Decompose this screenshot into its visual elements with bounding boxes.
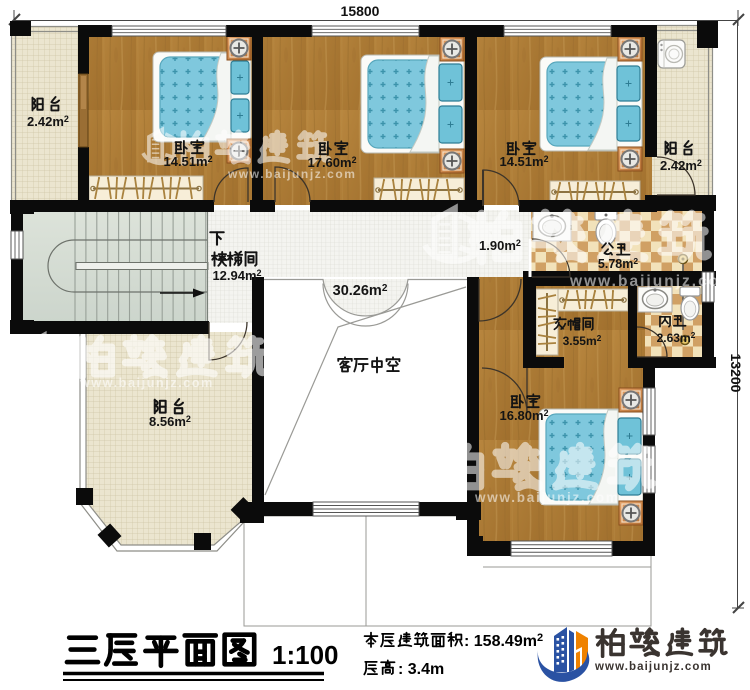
svg-text:13200: 13200 — [728, 354, 744, 393]
svg-text:30.26m2: 30.26m2 — [333, 283, 388, 299]
svg-text:: 158.49m2: : 158.49m2 — [464, 632, 543, 650]
svg-text:15800: 15800 — [341, 3, 380, 19]
svg-text:1:100: 1:100 — [272, 640, 339, 670]
svg-text:2.42m2: 2.42m2 — [27, 114, 69, 129]
svg-text:8.56m2: 8.56m2 — [149, 414, 191, 429]
svg-text:www.baijunjz.com: www.baijunjz.com — [79, 376, 214, 390]
svg-text:1.90m2: 1.90m2 — [479, 238, 521, 253]
svg-text:2.42m2: 2.42m2 — [660, 158, 702, 173]
svg-text:www.baijunjz.com: www.baijunjz.com — [569, 273, 736, 290]
svg-text:14.51m2: 14.51m2 — [163, 154, 212, 169]
svg-text:www.baijunjz.com: www.baijunjz.com — [474, 490, 620, 505]
svg-text:5.78m2: 5.78m2 — [598, 256, 638, 271]
svg-text:2.63m2: 2.63m2 — [657, 330, 696, 345]
svg-text:www.baijunjz.com: www.baijunjz.com — [594, 661, 712, 673]
svg-text:14.51m2: 14.51m2 — [499, 154, 548, 169]
svg-text:12.94m2: 12.94m2 — [212, 268, 261, 283]
svg-text:: 3.4m: : 3.4m — [398, 661, 444, 678]
svg-text:3.55m2: 3.55m2 — [563, 333, 602, 348]
svg-text:16.80m2: 16.80m2 — [499, 408, 548, 423]
svg-text:17.60m2: 17.60m2 — [307, 155, 356, 170]
